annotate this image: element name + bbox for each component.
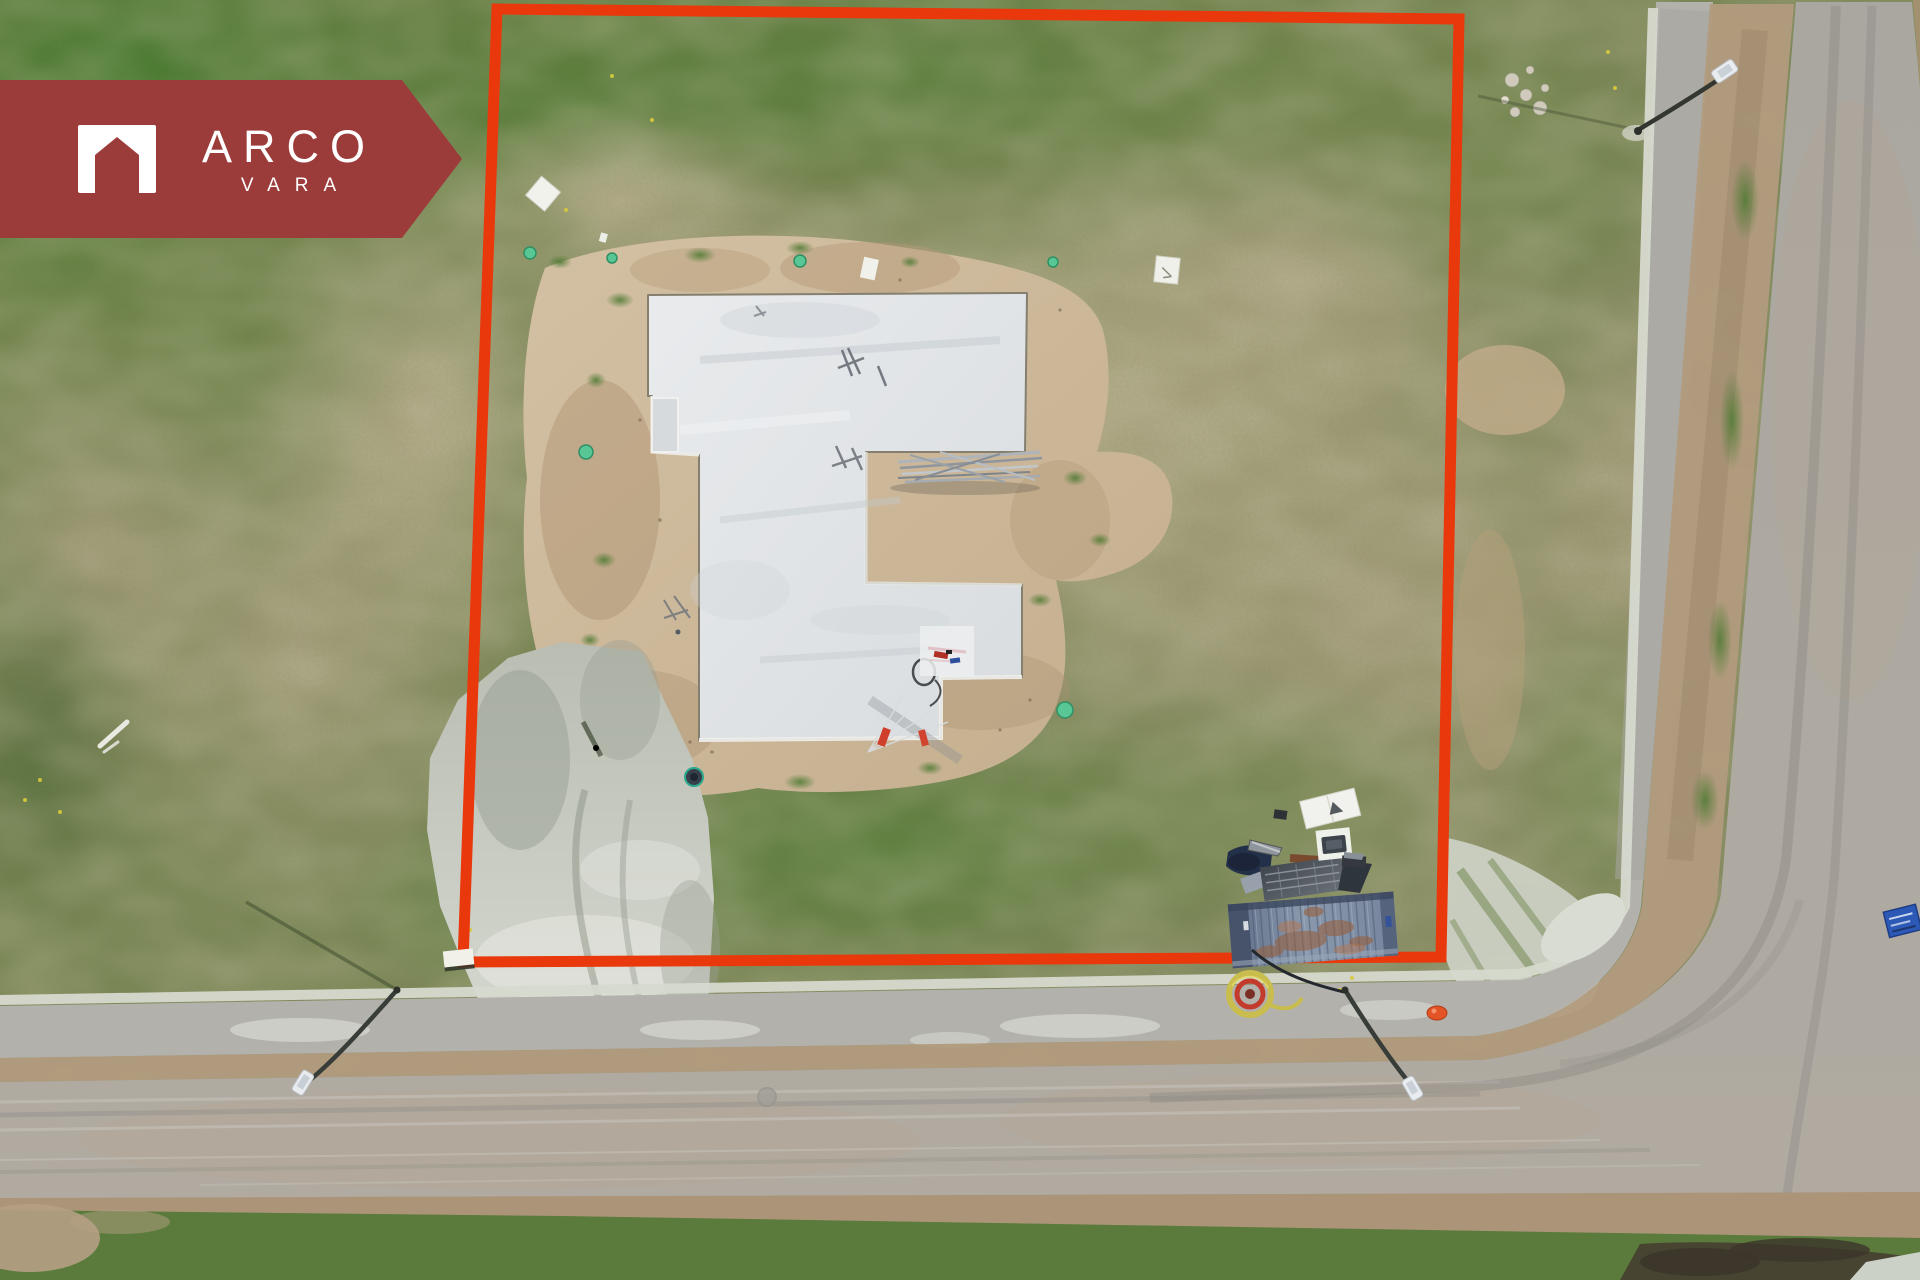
shipping-container bbox=[1228, 892, 1399, 969]
bucket bbox=[685, 768, 703, 786]
brand-subname: VARA bbox=[227, 176, 351, 195]
arco-vara-banner: ARCO VARA bbox=[0, 80, 462, 238]
dirt-streak bbox=[1455, 530, 1525, 770]
orange-bollard bbox=[1427, 1006, 1447, 1020]
road-bottom-verge bbox=[0, 1192, 1920, 1280]
house-arch-icon bbox=[78, 125, 156, 193]
aerial-photo: ARCO VARA bbox=[0, 0, 1920, 1280]
brand-name: ARCO bbox=[202, 124, 376, 169]
dirt-patch bbox=[1445, 345, 1565, 435]
slab-door-recess bbox=[652, 398, 678, 452]
brand-wordmark: ARCO VARA bbox=[202, 124, 376, 195]
white-ground-sign bbox=[1154, 256, 1181, 284]
boundary-corner-marker bbox=[443, 948, 475, 971]
